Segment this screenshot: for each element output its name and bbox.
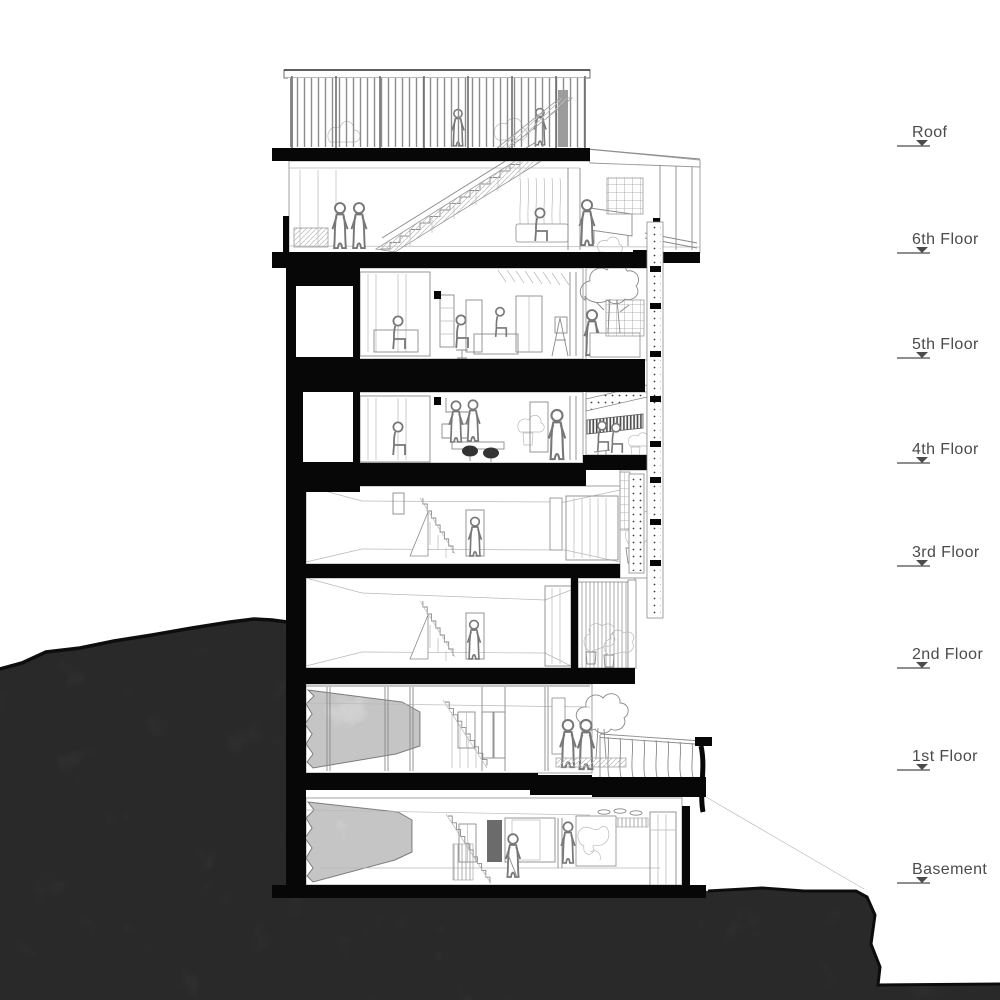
person-figure [561, 822, 575, 863]
person-figure [469, 517, 482, 556]
dark-chair [462, 446, 478, 457]
level-label: 4th Floor [912, 441, 979, 458]
stone-artwork [576, 816, 616, 866]
level-4th-floor: 4th Floor [897, 441, 979, 463]
sofa [516, 224, 568, 242]
level-3rd-floor: 3rd Floor [897, 544, 980, 566]
level-label: Roof [912, 124, 948, 141]
trellis [620, 472, 630, 530]
ceiling-slats [616, 818, 648, 827]
shoji-screen [607, 178, 643, 214]
perspective-line [706, 797, 864, 889]
level-5th-floor: 5th Floor [897, 336, 979, 358]
level-1st-floor: 1st Floor [897, 748, 978, 770]
trellis [606, 300, 644, 336]
person-figure [332, 203, 347, 248]
level-6th-floor: 6th Floor [897, 231, 979, 253]
level-roof: Roof [897, 124, 948, 146]
level-label: 6th Floor [912, 231, 979, 248]
person-figure [579, 200, 594, 245]
level-annotations: Roof 6th Floor 5th Floor 4th Floor 3rd F… [897, 124, 987, 883]
level-label: 2nd Floor [912, 646, 983, 663]
dark-chair [483, 448, 499, 459]
person-figure [468, 620, 481, 659]
roof-pavilion [284, 70, 700, 159]
level-label: Basement [912, 861, 987, 878]
level-label: 3rd Floor [912, 544, 980, 561]
person-figure [549, 410, 566, 459]
pillar [550, 498, 562, 550]
bench [294, 228, 328, 247]
level-2nd-floor: 2nd Floor [897, 646, 983, 668]
planter-box [590, 333, 640, 357]
planting-bed [556, 758, 626, 767]
level-label: 1st Floor [912, 748, 978, 765]
terrace-railing [600, 734, 702, 777]
building-section-drawing: Roof 6th Floor 5th Floor 4th Floor 3rd F… [0, 0, 1000, 1000]
section-drawing-canvas: Roof 6th Floor 5th Floor 4th Floor 3rd F… [0, 0, 1000, 1000]
person-figure [351, 203, 366, 248]
person-figure [449, 401, 463, 442]
level-label: 5th Floor [912, 336, 979, 353]
person-figure [466, 400, 480, 441]
dark-passage [487, 820, 502, 862]
level-basement: Basement [897, 861, 987, 883]
